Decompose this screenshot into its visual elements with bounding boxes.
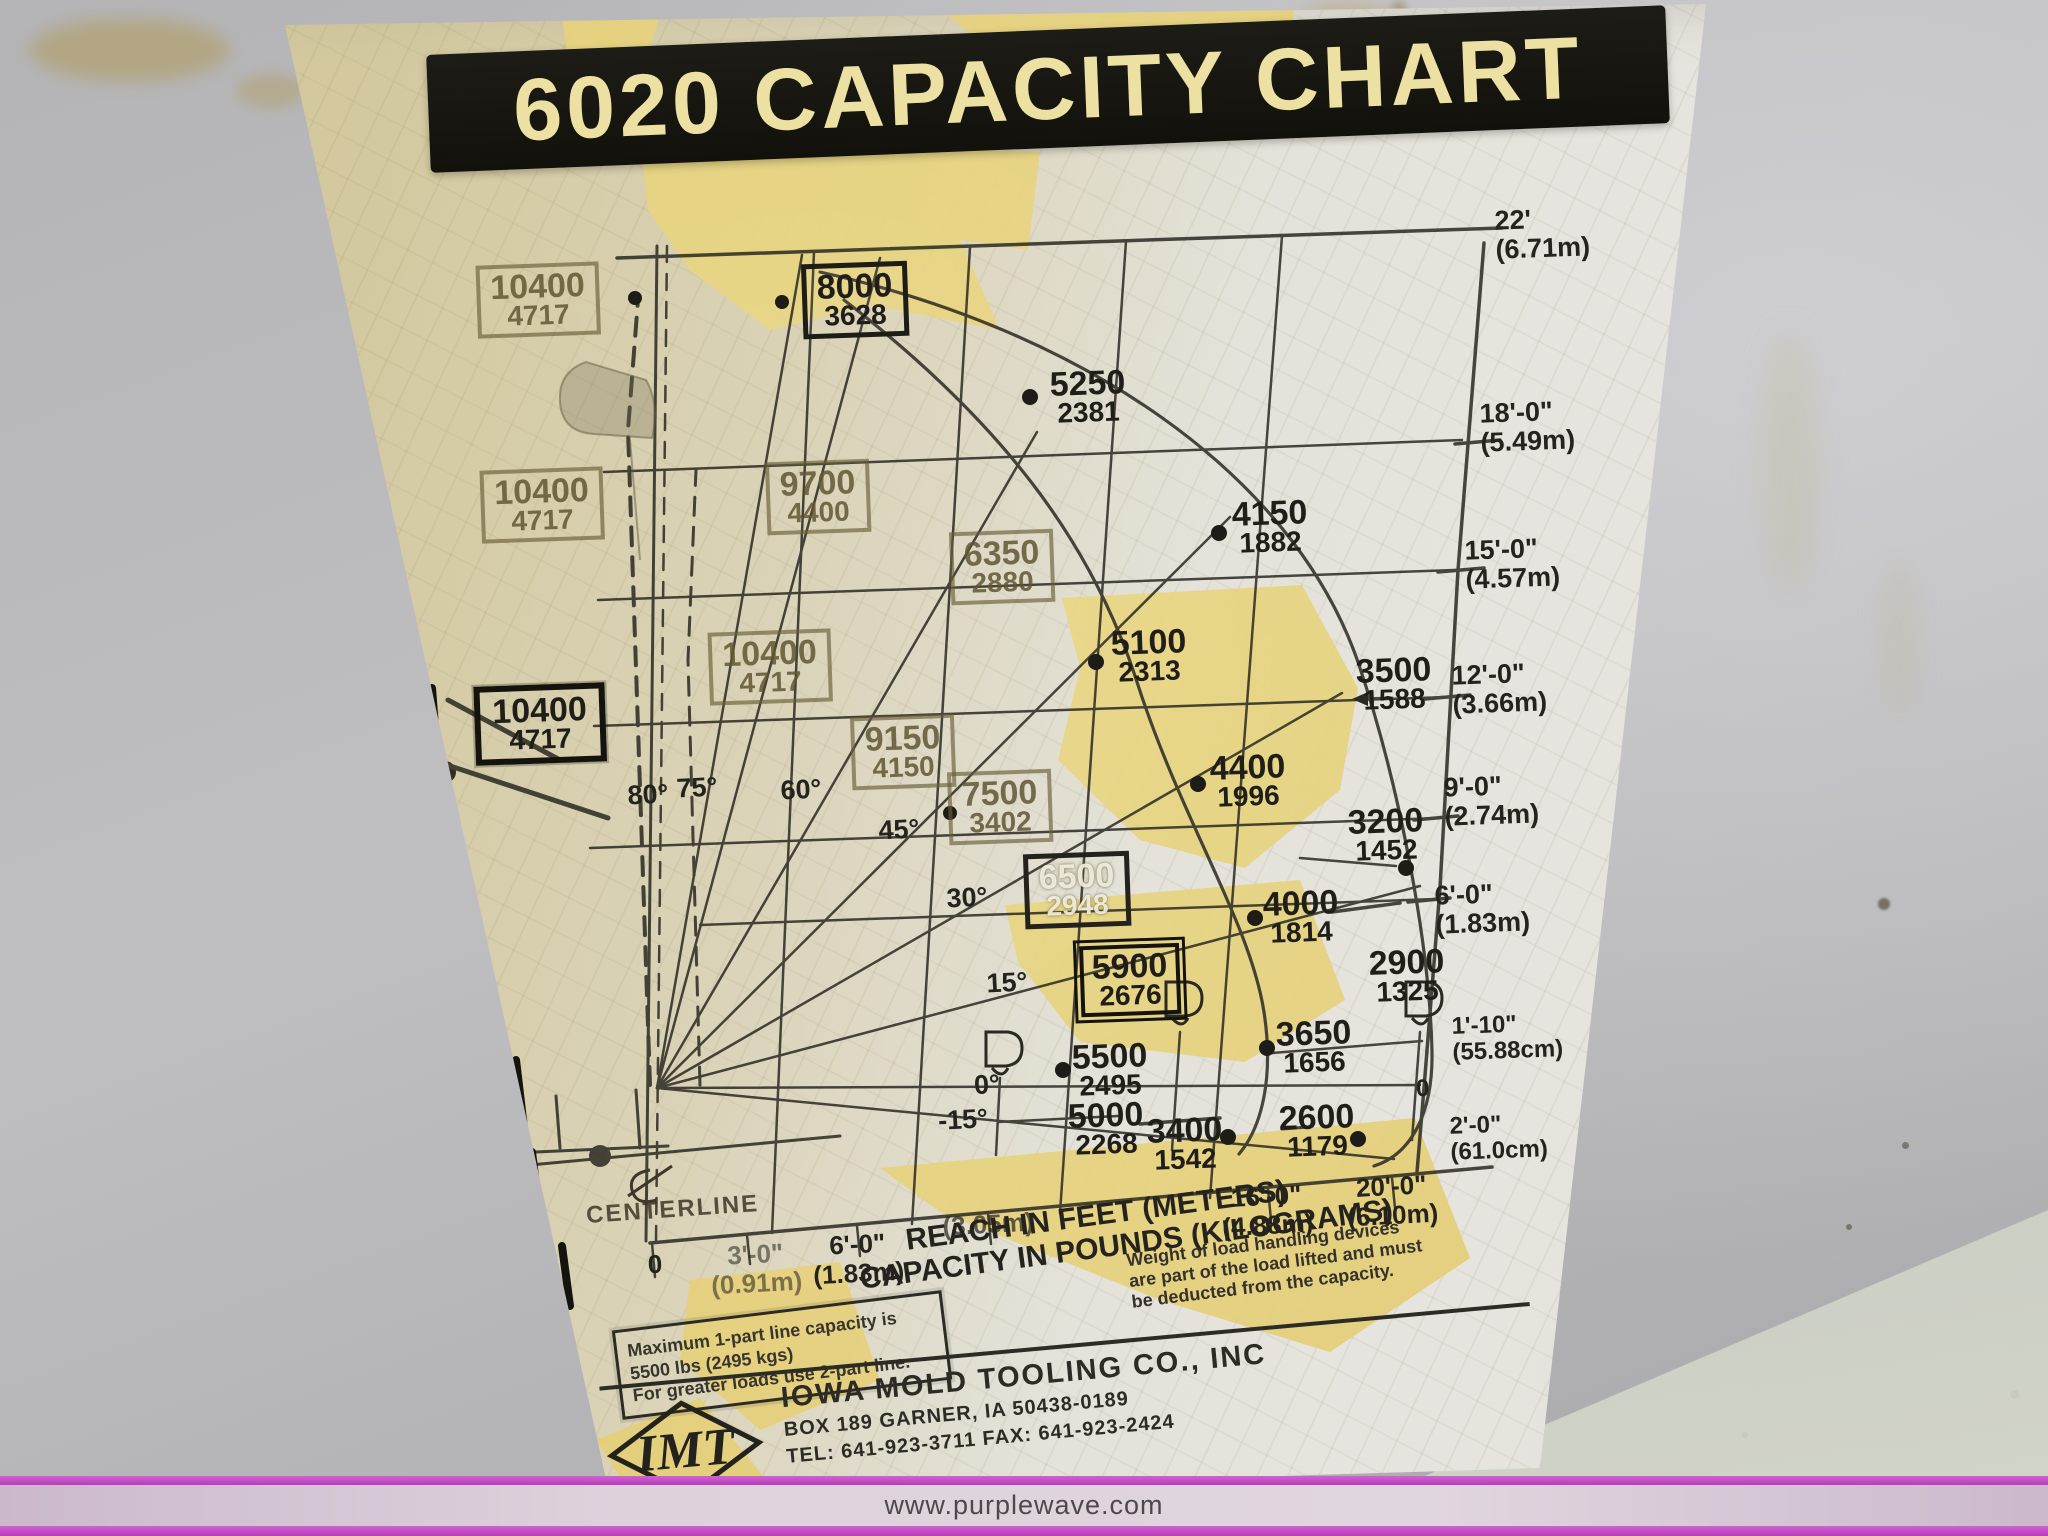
capacity-point: 91504150 <box>850 714 956 790</box>
height-tick: 6'-0"(1.83m) <box>1434 878 1531 940</box>
boom-angle-label: -15° <box>937 1103 988 1137</box>
watermark-band: www.purplewave.com <box>0 1485 2048 1526</box>
boom-angle-label: 75° <box>676 771 718 804</box>
capacity-point: 34001542 <box>1146 1113 1224 1174</box>
wall-speck <box>1846 1224 1852 1230</box>
capacity-point: 41501882 <box>1231 496 1309 557</box>
wall-stain <box>30 18 230 82</box>
chart-lines <box>0 0 2048 1536</box>
capacity-point: 104004717 <box>475 261 600 338</box>
capacity-point: 97004400 <box>765 459 871 535</box>
capacity-point: 50002268 <box>1067 1098 1145 1159</box>
watermark-text: www.purplewave.com <box>884 1490 1163 1521</box>
boom-angle-label: 45° <box>878 813 920 846</box>
capacity-point: 52502381 <box>1049 366 1127 427</box>
boom-angle-label: 0° <box>973 1069 1000 1101</box>
svg-text:IMT: IMT <box>633 1418 739 1484</box>
wall-stain <box>1880 560 1920 720</box>
capacity-point: 65002948 <box>1023 851 1131 930</box>
height-tick: 0 <box>1416 1076 1430 1102</box>
capacity-point: 40001814 <box>1262 886 1340 947</box>
capacity-point: 75003402 <box>947 769 1053 845</box>
height-tick: 12'-0"(3.66m) <box>1451 658 1548 720</box>
height-tick: 18'-0"(5.49m) <box>1479 396 1576 458</box>
capacity-point: 104004717 <box>707 628 832 705</box>
capacity-point: 104004717 <box>479 466 604 543</box>
height-tick: 22'(6.71m) <box>1494 203 1591 265</box>
wall-speck <box>1902 1142 1909 1149</box>
wall-speck <box>1878 898 1890 910</box>
capacity-point: 44001996 <box>1209 750 1287 811</box>
capacity-point: 35001588 <box>1355 653 1433 714</box>
capacity-point: 55002495 <box>1071 1039 1149 1100</box>
watermark-bar-bottom <box>0 1526 2048 1536</box>
photo: 6020 CAPACITY CHART 104004717 80003628 5… <box>0 0 2048 1536</box>
boom-angle-label: 80° <box>627 778 669 811</box>
capacity-chart-sticker: 6020 CAPACITY CHART 104004717 80003628 5… <box>0 0 2048 1536</box>
wall-stain <box>236 74 306 108</box>
boom-angle-label: 60° <box>780 773 822 806</box>
capacity-point: 59002676 <box>1079 943 1181 1017</box>
capacity-point: 29001325 <box>1368 945 1446 1006</box>
capacity-point: 51002313 <box>1110 625 1188 686</box>
height-tick: 1'-10"(55.88cm) <box>1451 1010 1563 1066</box>
height-tick: 9'-0"(2.74m) <box>1443 770 1540 832</box>
reach-tick: 0 <box>647 1250 663 1279</box>
height-tick: 15'-0"(4.57m) <box>1464 533 1561 595</box>
capacity-point: 104004717 <box>473 682 606 765</box>
reach-tick: 3'-0"(0.91m) <box>709 1238 803 1300</box>
capacity-point: 26001179 <box>1278 1100 1356 1161</box>
capacity-point: 80003628 <box>801 261 909 340</box>
capacity-point: 32001452 <box>1347 804 1425 865</box>
boom-angle-label: 15° <box>986 966 1028 999</box>
watermark-bar-top <box>0 1476 2048 1485</box>
capacity-point: 36501656 <box>1275 1016 1353 1077</box>
capacity-point: 63502880 <box>949 529 1055 605</box>
wall-stain <box>1760 330 1820 590</box>
height-tick: 2'-0"(61.0cm) <box>1449 1110 1548 1165</box>
boom-angle-label: 30° <box>946 881 988 914</box>
